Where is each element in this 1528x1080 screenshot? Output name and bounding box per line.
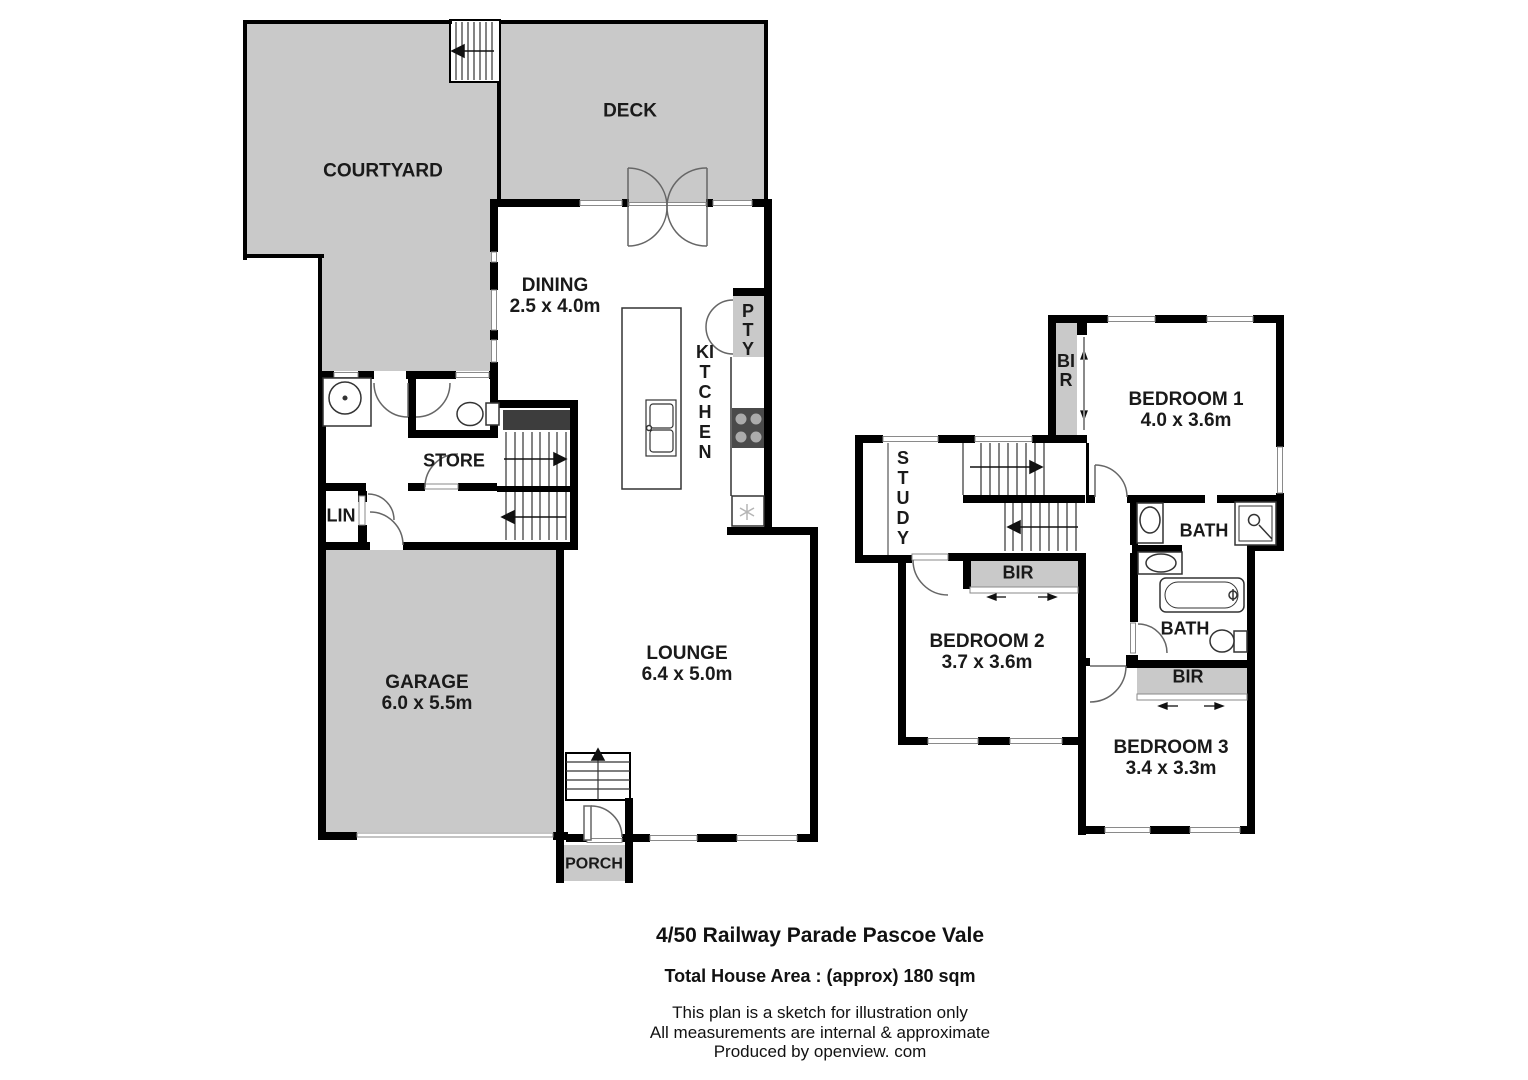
- lin-door-leaf: [359, 496, 365, 525]
- bedroom3-label: BEDROOM 3 3.4 x 3.3m: [1113, 737, 1228, 779]
- garage-name: GARAGE: [382, 672, 473, 693]
- outdoor-and-robe-fills: [247, 24, 1247, 881]
- pantry-label: PTY: [738, 302, 758, 359]
- porch-label: PORCH: [565, 854, 623, 875]
- garage-door-line: [357, 833, 553, 837]
- stair-bench: [503, 410, 570, 430]
- courtyard-label: COURTYARD: [323, 161, 443, 182]
- dining-dims: 2.5 x 4.0m: [510, 296, 601, 317]
- floorplan-page: COURTYARD DECK DINING 2.5 x 4.0m KITCHEN…: [0, 0, 1528, 1080]
- bedroom3-dims: 3.4 x 3.3m: [1113, 758, 1228, 779]
- store-label: STORE: [423, 451, 485, 472]
- bedroom2-dims: 3.7 x 3.6m: [929, 652, 1044, 673]
- bedroom3-name: BEDROOM 3: [1113, 737, 1228, 758]
- laundry-trough: [323, 378, 371, 426]
- bir3-label: BIR: [1173, 667, 1204, 688]
- bir3-track: [1137, 694, 1247, 700]
- bath1-label: BATH: [1180, 521, 1229, 542]
- entry-threshold: [587, 839, 622, 843]
- store-door-leaf: [425, 484, 458, 489]
- bedroom2-name: BEDROOM 2: [929, 631, 1044, 652]
- study-label: STUDY: [893, 448, 913, 548]
- bir2-track: [970, 587, 1078, 593]
- bedroom2-label: BEDROOM 2 3.7 x 3.6m: [929, 631, 1044, 673]
- disclaimer-line1: This plan is a sketch for illustration o…: [672, 1003, 968, 1023]
- floorplan-drawing: [0, 0, 1528, 1080]
- bathtub: [1160, 578, 1244, 612]
- total-area-text: Total House Area : (approx) 180 sqm: [664, 966, 975, 987]
- lounge-name: LOUNGE: [642, 643, 733, 664]
- bath1-vanity: [1137, 503, 1163, 543]
- lounge-label: LOUNGE 6.4 x 5.0m: [642, 643, 733, 685]
- bir1-label: BIR: [1056, 352, 1076, 390]
- bath2-door-leaf: [1131, 623, 1136, 653]
- bath2-label: BATH: [1161, 619, 1210, 640]
- wc-toilet: [457, 403, 499, 426]
- deck-label: DECK: [603, 101, 657, 122]
- bedroom2-door-leaf: [912, 554, 948, 560]
- bir2-label: BIR: [1003, 563, 1034, 584]
- fridge: [732, 496, 764, 526]
- garage-dims: 6.0 x 5.5m: [382, 693, 473, 714]
- address-title: 4/50 Railway Parade Pascoe Vale: [656, 924, 984, 948]
- shower: [1235, 502, 1276, 545]
- disclaimer-line2: All measurements are internal & approxim…: [650, 1023, 990, 1043]
- credit-line: Produced by openview. com: [714, 1042, 927, 1062]
- kitchen-island: [622, 308, 681, 489]
- kitchen-label: KITCHEN: [695, 342, 715, 462]
- cooktop: [732, 408, 764, 448]
- bath2-vanity: [1138, 552, 1182, 574]
- bedroom1-label: BEDROOM 1 4.0 x 3.6m: [1128, 389, 1243, 431]
- bath2-toilet: [1210, 630, 1247, 652]
- bedroom1-name: BEDROOM 1: [1128, 389, 1243, 410]
- dining-label: DINING 2.5 x 4.0m: [510, 275, 601, 317]
- linen-label: LIN: [327, 506, 356, 527]
- dining-name: DINING: [510, 275, 601, 296]
- bedroom1-dims: 4.0 x 3.6m: [1128, 410, 1243, 431]
- garage-label: GARAGE 6.0 x 5.5m: [382, 672, 473, 714]
- lounge-dims: 6.4 x 5.0m: [642, 664, 733, 685]
